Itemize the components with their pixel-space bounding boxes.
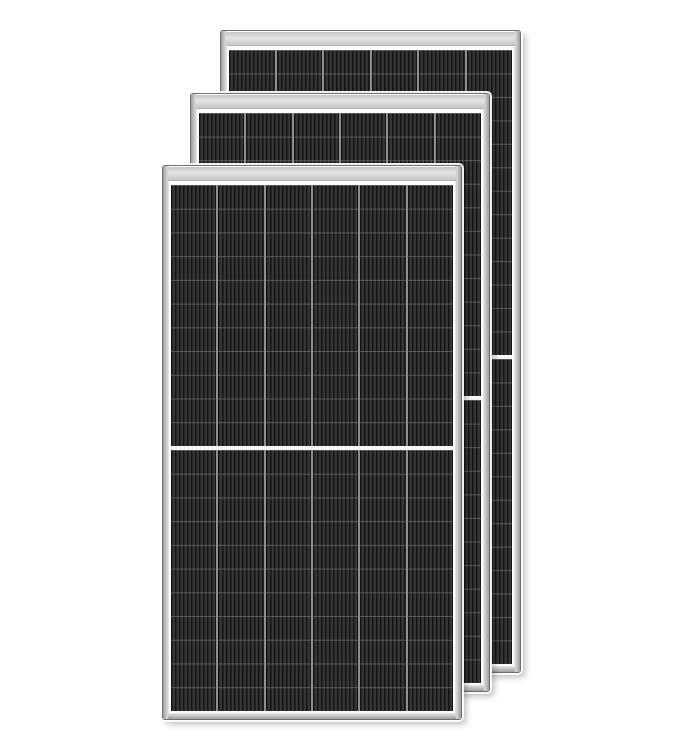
frame-top-flange <box>196 95 484 109</box>
cell-column <box>311 450 358 711</box>
cell-column <box>216 450 263 711</box>
frame-right-rail <box>514 31 520 672</box>
cell-column <box>358 450 405 711</box>
frame-left-rail <box>163 166 169 719</box>
frame-bottom-rail <box>168 713 456 719</box>
cell-area <box>171 185 453 711</box>
cell-column <box>264 185 311 446</box>
frame-top-flange <box>168 167 456 181</box>
solar-panel-front <box>162 165 462 720</box>
cell-column <box>358 185 405 446</box>
cell-column <box>171 450 216 711</box>
cell-column <box>171 185 216 446</box>
cell-half-top <box>171 185 453 446</box>
frame-right-rail <box>455 166 461 719</box>
frame-top-flange <box>226 32 515 46</box>
cell-column <box>406 185 453 446</box>
cell-column <box>264 450 311 711</box>
frame-right-rail <box>483 94 489 691</box>
cell-half-bottom <box>171 450 453 711</box>
cell-column <box>311 185 358 446</box>
solar-panel-stack-image <box>0 0 684 748</box>
cell-column <box>406 450 453 711</box>
cell-column <box>216 185 263 446</box>
